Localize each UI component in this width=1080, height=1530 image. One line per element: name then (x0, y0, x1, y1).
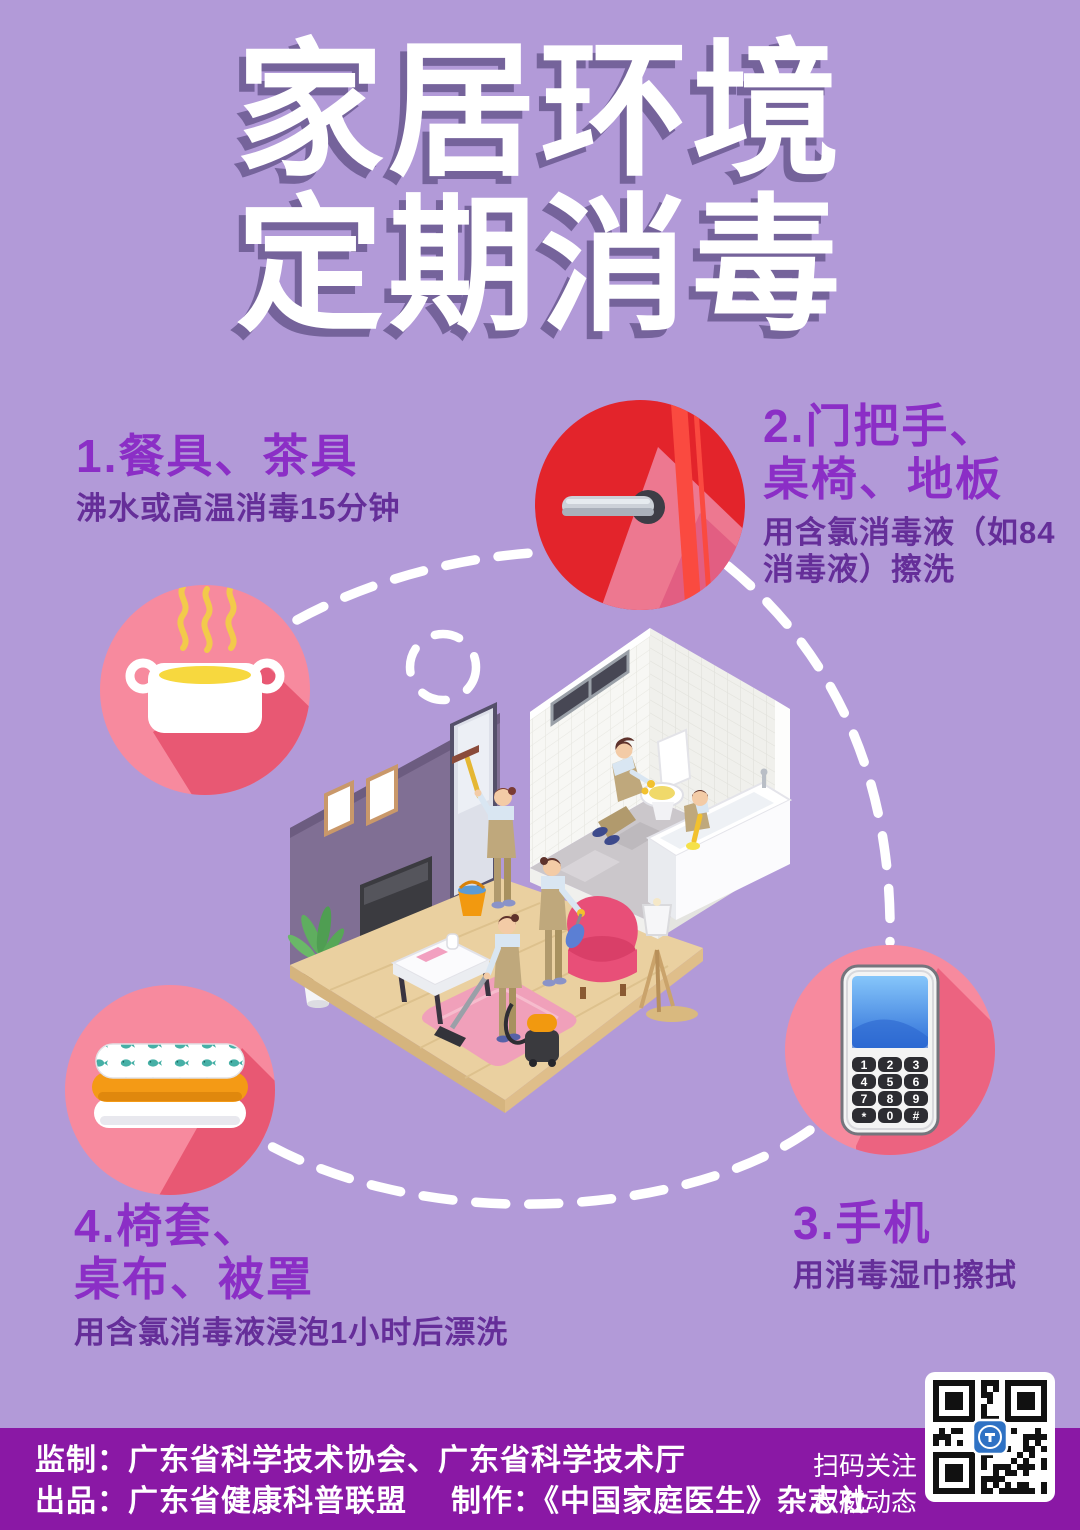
small-dashed-circle (410, 634, 476, 700)
section-tableware: 1.餐具、茶具 沸水或高温消毒15分钟 (76, 430, 400, 528)
footer-credit-line2: 出品：广东省健康科普联盟制作：《中国家庭医生》杂志社 (35, 1481, 870, 1522)
poster-title: 家居环境 定期消毒 (0, 34, 1080, 345)
phone-key: 4 (861, 1075, 868, 1089)
section-tableware-desc: 沸水或高温消毒15分钟 (76, 490, 400, 527)
cleaning-bucket (458, 882, 486, 916)
poster-title-line2: 定期消毒 (0, 189, 1080, 344)
footer-credit-producer: 出品：广东省健康科普联盟 (35, 1485, 407, 1518)
phone-key: 8 (887, 1092, 894, 1106)
phone-key: 2 (887, 1058, 894, 1072)
section-linens-desc: 用含氯消毒液浸泡1小时后漂洗 (74, 1314, 508, 1351)
section-tableware-heading: 1.餐具、茶具 (76, 430, 400, 483)
footer-credits: 监制：广东省科学技术协会、广东省科学技术厅 出品：广东省健康科普联盟制作：《中国… (35, 1440, 870, 1523)
phone-key: 6 (913, 1075, 920, 1089)
phone-key: * (862, 1110, 867, 1124)
section-phone-heading: 3.手机 (793, 1197, 1017, 1250)
qr-caption-line2: 权威动态 (798, 1486, 932, 1519)
section-linens: 4.椅套、 桌布、被罩 用含氯消毒液浸泡1小时后漂洗 (74, 1200, 508, 1351)
qr-caption: 扫码关注 权威动态 (798, 1447, 932, 1521)
section-phone-desc: 用消毒湿巾擦拭 (793, 1257, 1017, 1294)
section-door-handle-desc-line2: 消毒液）擦洗 (763, 551, 1055, 588)
section-phone: 3.手机 用消毒湿巾擦拭 (793, 1197, 1017, 1295)
section-door-handle: 2.门把手、 桌椅、地板 用含氯消毒液（如84 消毒液）擦洗 (763, 400, 1055, 588)
section-linens-heading-line1: 4.椅套、 (74, 1200, 508, 1253)
mobile-phone-icon: 1 2 3 4 5 6 7 8 9 * 0 # (785, 945, 1040, 1200)
section-door-handle-heading-line2: 桌椅、地板 (763, 453, 1055, 506)
phone-key: 7 (861, 1092, 868, 1106)
phone-key: 9 (913, 1092, 920, 1106)
phone-key: 1 (861, 1058, 868, 1072)
footer-credit-line1: 监制：广东省科学技术协会、广东省科学技术厅 (35, 1440, 870, 1481)
cleaning-room-illustration (285, 628, 790, 1113)
poster-title-line1: 家居环境 (0, 34, 1080, 189)
phone-key: 3 (913, 1058, 920, 1072)
section-door-handle-heading-line1: 2.门把手、 (763, 400, 1055, 453)
poster: 1 2 3 4 5 6 7 8 9 * 0 # (0, 0, 1080, 1530)
section-door-handle-desc-line1: 用含氯消毒液（如84 (763, 514, 1055, 551)
door (450, 702, 497, 906)
door-handle-icon (535, 391, 760, 625)
qr-center-logo (973, 1420, 1007, 1454)
qr-caption-line1: 扫码关注 (798, 1450, 932, 1483)
qr-code (925, 1372, 1055, 1502)
phone-key: 0 (887, 1109, 894, 1123)
phone-key: 5 (887, 1075, 894, 1089)
phone-key: # (913, 1109, 920, 1123)
section-linens-heading-line2: 桌布、被罩 (74, 1253, 508, 1306)
